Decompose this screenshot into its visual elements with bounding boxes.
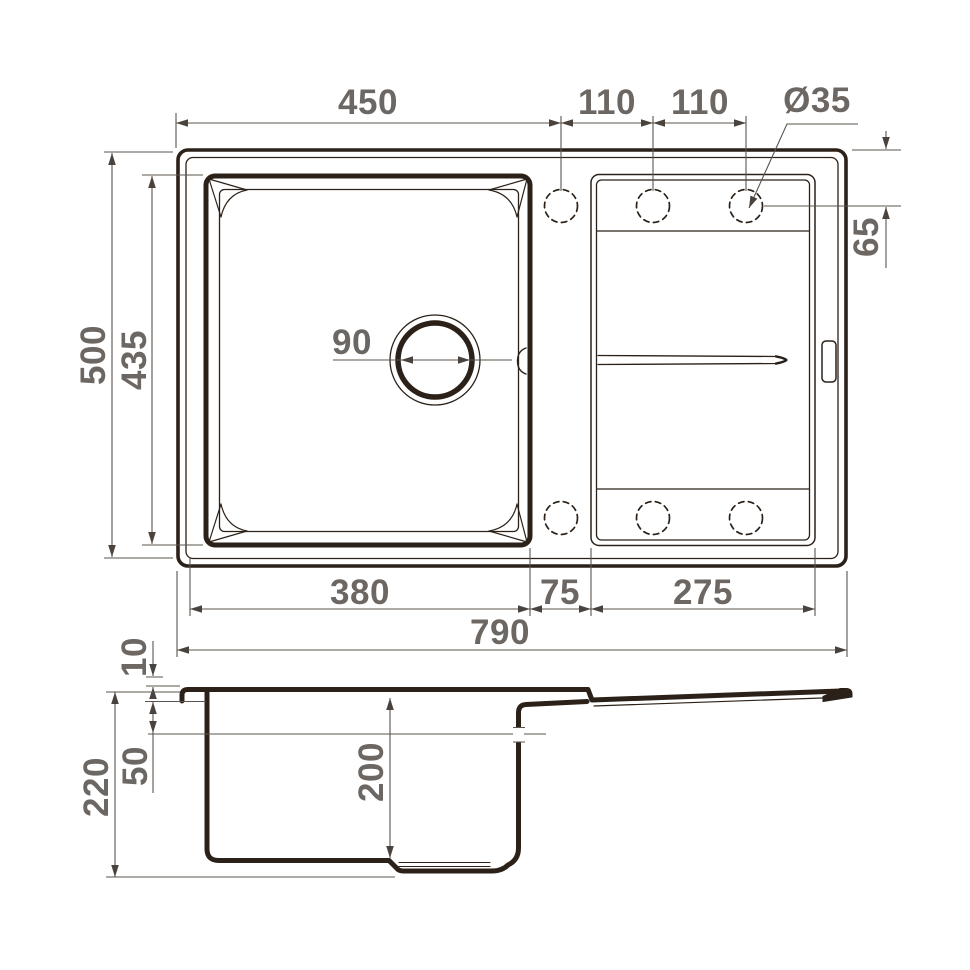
overflow-slot <box>822 341 836 382</box>
drainboard-outer <box>591 175 815 546</box>
dim-435: 435 <box>115 330 154 390</box>
dim-275: 275 <box>673 573 733 612</box>
dim-50: 50 <box>116 746 155 786</box>
tap-hole-3 <box>730 190 763 223</box>
dimensions <box>104 113 901 877</box>
technical-drawing: 450 110 110 Ø35 500 435 90 65 380 75 275… <box>0 0 970 970</box>
dim-450: 450 <box>338 83 398 122</box>
dim-75: 75 <box>540 573 580 612</box>
side-bowl-profile <box>207 692 587 871</box>
sink-drawing-svg: 450 110 110 Ø35 500 435 90 65 380 75 275… <box>0 0 970 970</box>
side-overflow-gap <box>514 727 524 742</box>
drainboard-inner <box>597 180 810 540</box>
tap-hole-4 <box>545 502 578 535</box>
sink-outer-edge <box>178 150 846 566</box>
tap-hole-1 <box>545 190 578 223</box>
bowl-corner-bevel-tr <box>489 179 527 217</box>
side-view <box>145 689 852 872</box>
dim-hole-diameter: Ø35 <box>783 81 851 120</box>
leader-hole-diameter <box>749 124 858 208</box>
dim-90: 90 <box>332 323 372 362</box>
dim-110b: 110 <box>671 83 729 122</box>
top-view <box>178 150 846 566</box>
dim-110a: 110 <box>578 83 636 122</box>
dim-790: 790 <box>470 613 530 652</box>
drainboard-groove-tip <box>776 356 786 363</box>
bowl-corner-bevel-br <box>489 504 527 542</box>
dimension-labels: 450 110 110 Ø35 500 435 90 65 380 75 275… <box>74 81 886 817</box>
tap-hole-6 <box>730 502 763 535</box>
dim-220: 220 <box>77 757 116 817</box>
drainboard-groove <box>598 356 787 365</box>
side-deck-profile <box>182 690 840 702</box>
side-drain-recess-lines <box>399 863 490 867</box>
dim-380: 380 <box>330 573 390 612</box>
dim-500: 500 <box>74 325 113 385</box>
bowl-corner-bevel-tl <box>209 179 247 217</box>
dim-10: 10 <box>115 637 154 677</box>
tap-hole-5 <box>637 502 670 535</box>
bowl-corner-bevel-bl <box>209 504 247 542</box>
sink-inner-edge <box>186 158 838 559</box>
tap-hole-2 <box>637 190 670 223</box>
dim-65: 65 <box>847 217 886 257</box>
dim-200: 200 <box>352 742 391 802</box>
